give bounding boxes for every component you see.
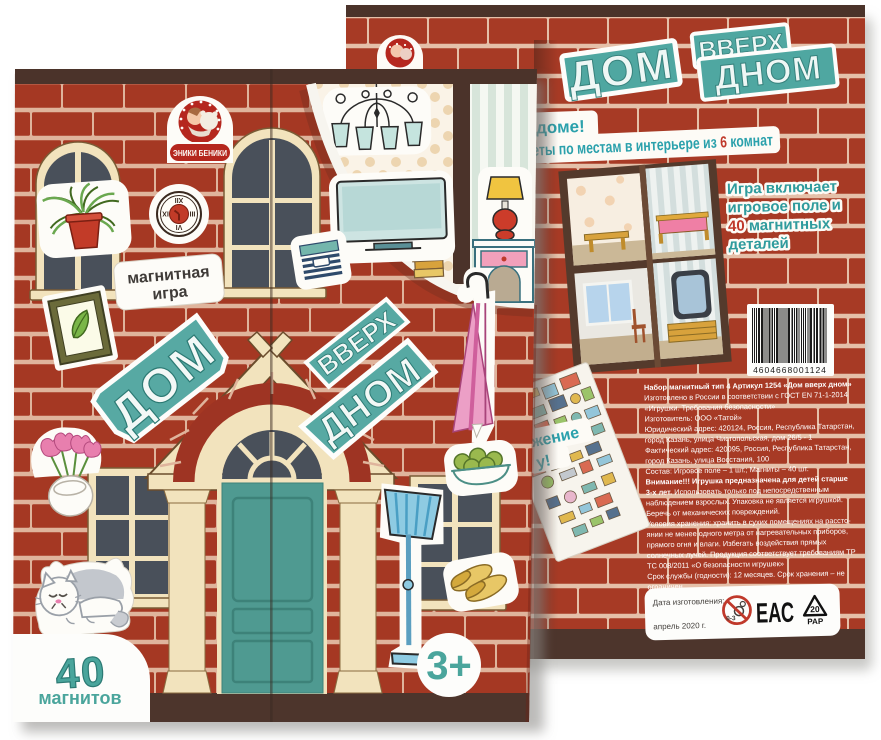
svg-text:III: III: [190, 210, 196, 217]
svg-text:IX: IX: [162, 210, 169, 217]
svg-text:XII: XII: [175, 196, 184, 203]
svg-text:20: 20: [810, 604, 820, 614]
svg-text:0-3: 0-3: [726, 615, 736, 622]
svg-text:PAP: PAP: [807, 617, 824, 626]
svg-text:Изготовитель: ООО «Татой»: Изготовитель: ООО «Татой»: [644, 413, 741, 424]
svg-text:ЭНИКИ БЕНИКИ: ЭНИКИ БЕНИКИ: [173, 149, 227, 158]
svg-text:ЕАС: ЕАС: [756, 597, 795, 629]
svg-text:Дата изготовления:: Дата изготовления:: [653, 596, 725, 607]
svg-text:магнитов: магнитов: [38, 688, 121, 708]
svg-text:4604668001124: 4604668001124: [753, 365, 827, 375]
svg-text:3+: 3+: [426, 644, 472, 688]
svg-text:деталей: деталей: [728, 235, 789, 254]
svg-text:игра: игра: [152, 283, 189, 303]
svg-text:VI: VI: [176, 223, 183, 230]
svg-text:40 магнитных: 40 магнитных: [728, 215, 831, 235]
svg-text:апрель 2020 г.: апрель 2020 г.: [653, 621, 706, 631]
svg-text:игровое поле и: игровое поле и: [727, 197, 841, 217]
svg-text:Игра включает: Игра включает: [727, 178, 837, 198]
